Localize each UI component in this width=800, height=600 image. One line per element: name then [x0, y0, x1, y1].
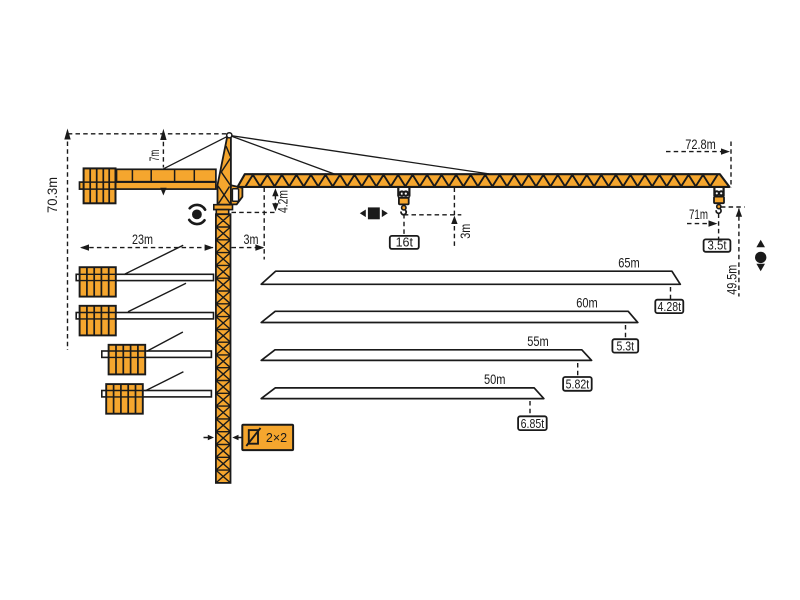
svg-text:7m: 7m	[147, 150, 162, 162]
svg-text:6.85t: 6.85t	[521, 417, 545, 431]
svg-text:23m: 23m	[132, 232, 153, 247]
svg-text:60m: 60m	[576, 295, 598, 310]
svg-text:2×2: 2×2	[266, 431, 287, 445]
svg-text:5.3t: 5.3t	[617, 339, 635, 353]
svg-text:71m: 71m	[689, 207, 708, 222]
svg-text:3.5t: 3.5t	[708, 239, 727, 253]
svg-text:72.8m: 72.8m	[685, 137, 716, 152]
svg-text:49.5m: 49.5m	[725, 265, 740, 295]
svg-text:16t: 16t	[396, 236, 414, 250]
svg-text:4.28t: 4.28t	[658, 300, 682, 314]
svg-text:5.82t: 5.82t	[566, 378, 590, 392]
svg-text:50m: 50m	[484, 372, 506, 387]
svg-text:4.2m: 4.2m	[276, 190, 291, 213]
svg-text:3m: 3m	[458, 224, 473, 239]
svg-text:3m: 3m	[244, 232, 259, 247]
svg-text:70.3m: 70.3m	[45, 177, 60, 213]
svg-text:55m: 55m	[527, 334, 549, 349]
svg-text:65m: 65m	[618, 256, 640, 271]
